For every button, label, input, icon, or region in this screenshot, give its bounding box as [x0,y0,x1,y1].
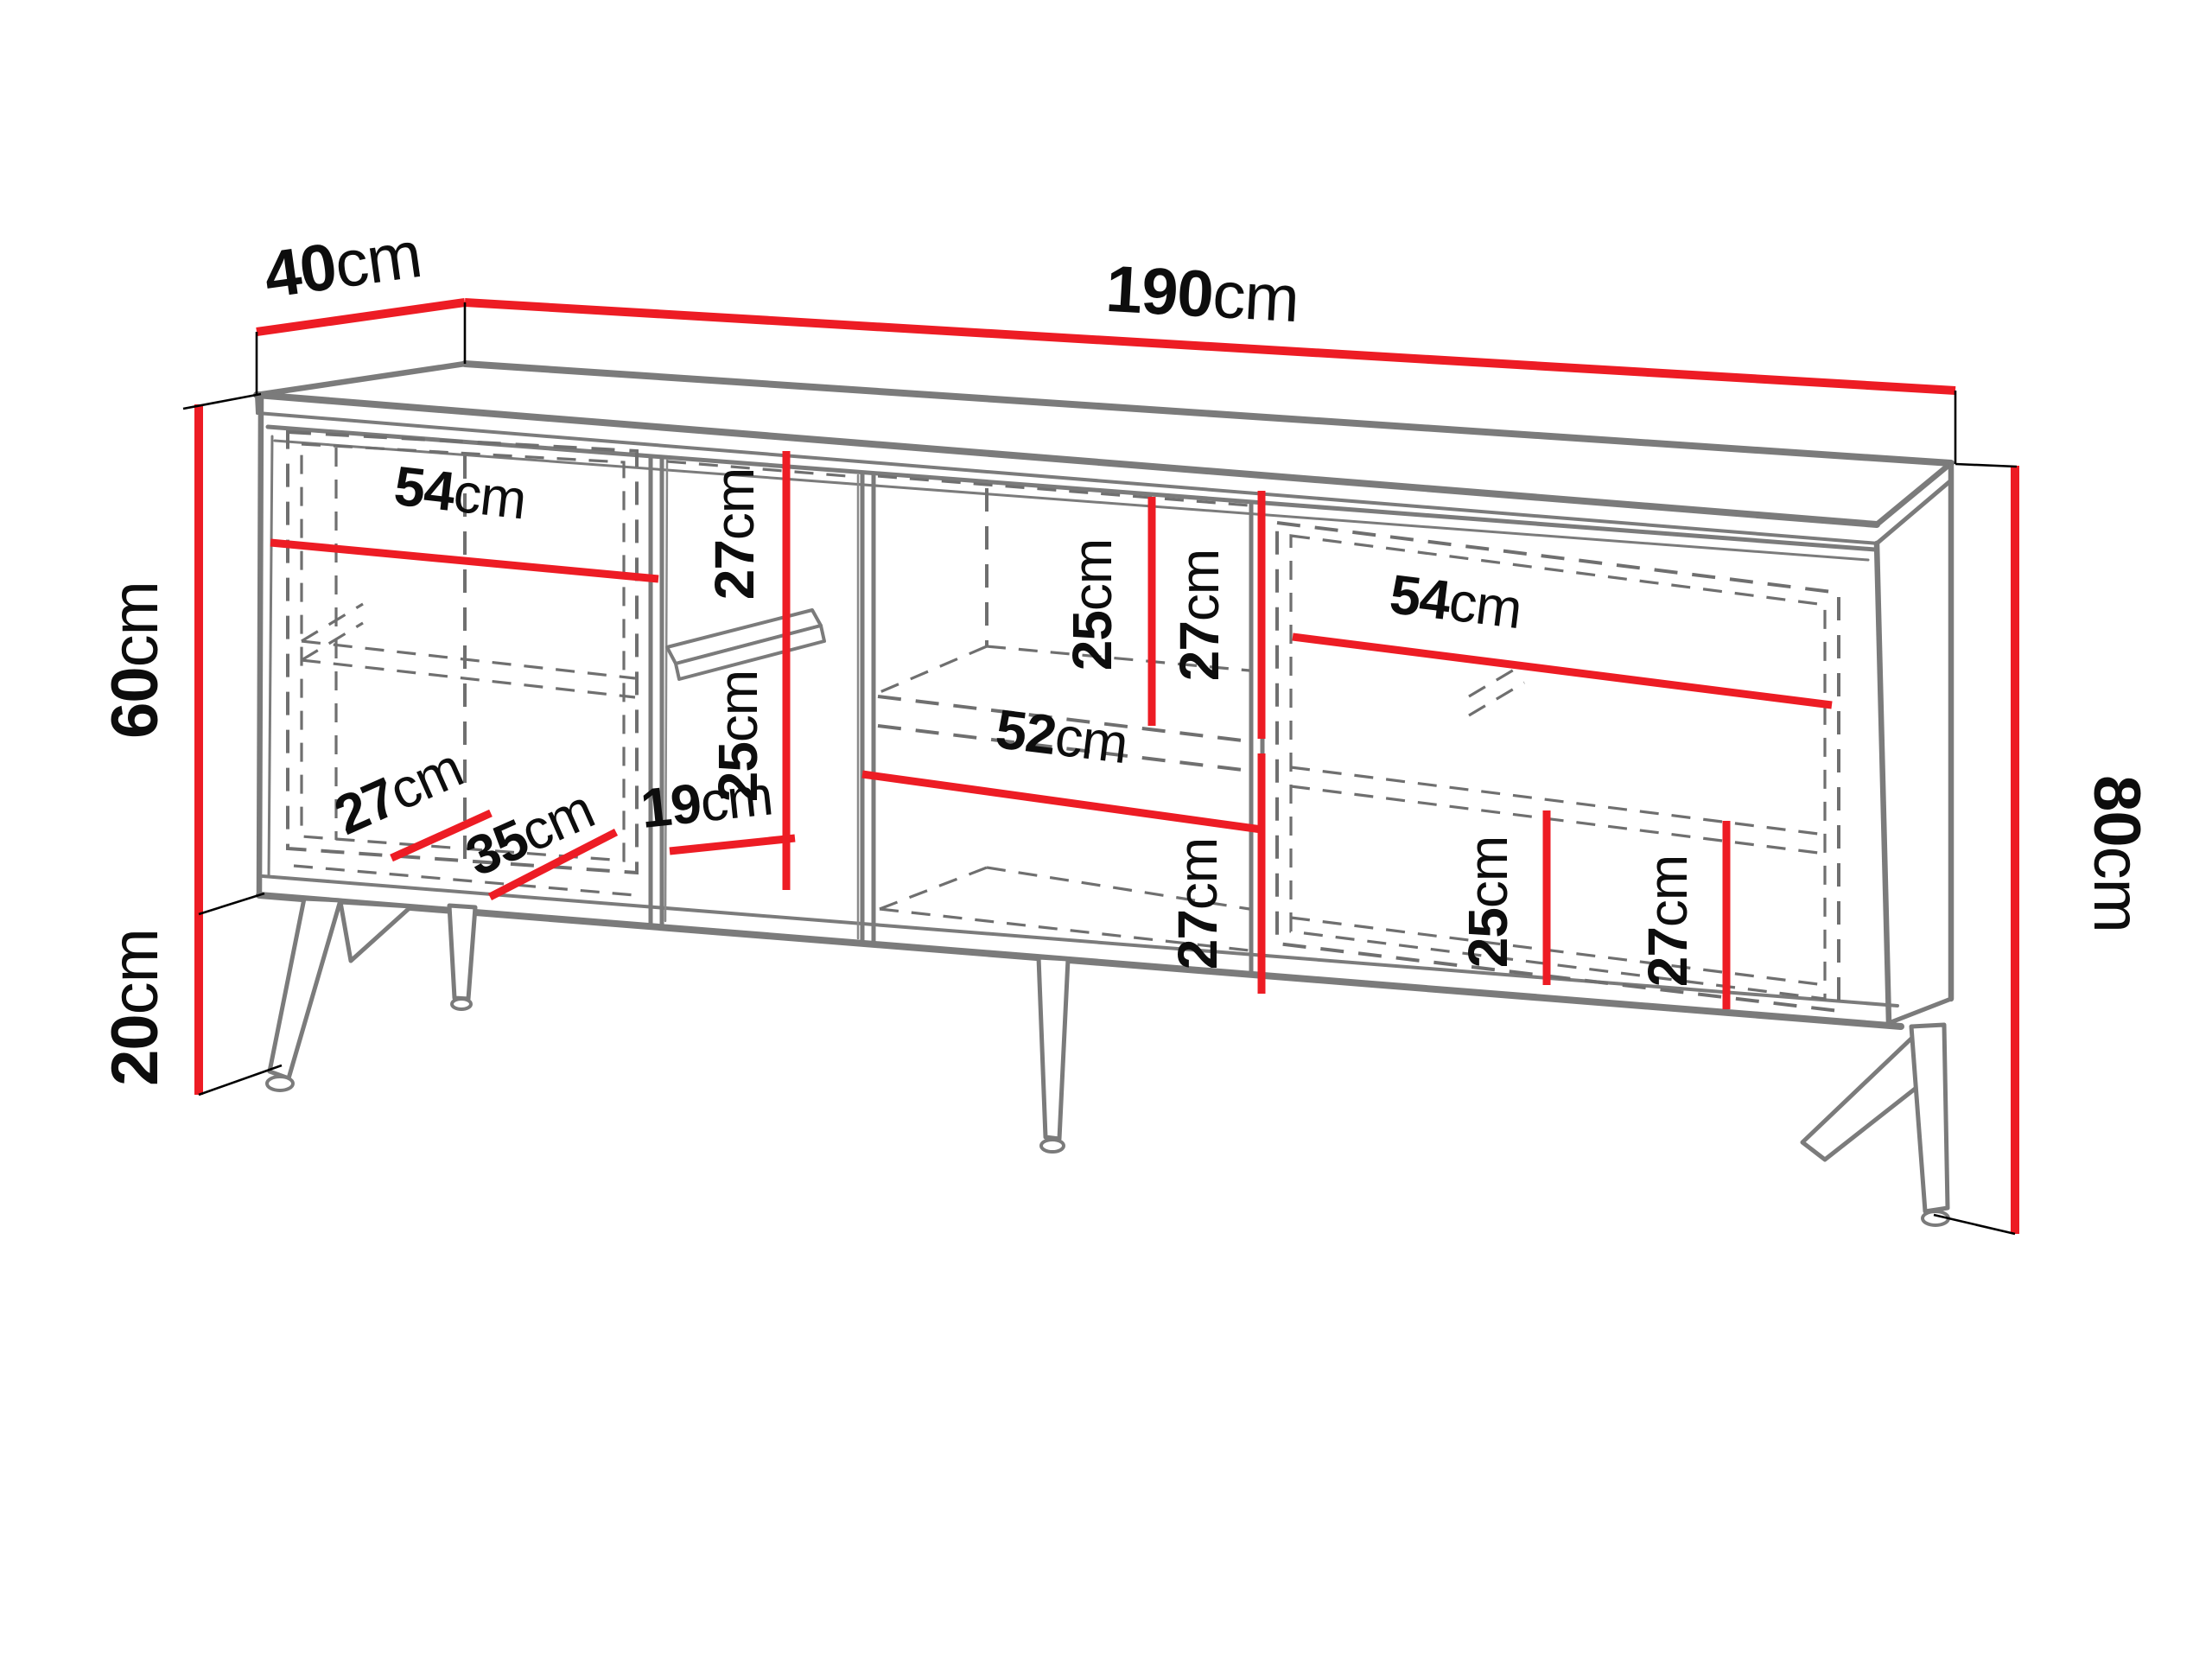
dim-label-left-depth-front: 35cm [457,778,603,888]
dim-label-middle-upper-left: 25cm [1061,539,1123,671]
middle-leg-foot [1041,1140,1064,1152]
dim-label-middle-width: 52cm [993,697,1131,775]
tick-60-top [183,394,261,409]
dim-line-right-width-54 [1293,637,1832,705]
back-left-leg [449,906,475,999]
front-left-leg-foot [267,1077,293,1090]
dim-line-middle-width-52 [862,774,1262,829]
carcass-left-edge [259,399,261,895]
middle-leg [1039,957,1068,1139]
front-left-leg [270,899,340,1078]
right-shelf-front-bottom [1291,786,1825,854]
top-panel-left-edge [257,395,257,413]
tick-80-top [1955,464,2017,467]
dim-label-niche-width: 19cm [638,764,775,840]
carcass-left-inner-edge [269,436,272,876]
dimension-diagram: 40cm 190cm 60cm 20cm 80cm 54cm 27cm 35cm… [0,0,2212,1659]
left-shelf-depth-a [302,604,363,641]
right-shelf-front-top [1291,767,1825,835]
dim-label-middle-lower: 27cm [1166,838,1229,970]
front-left-leg-brace [340,902,411,961]
dim-label-right-lower-left: 25cm [1457,836,1519,969]
dim-label-carcass-height: 60cm [99,582,172,739]
dim-label-width: 190cm [1104,252,1301,336]
right-shelf-depth-b [1469,683,1524,715]
dim-label-middle-upper-right: 27cm [1168,550,1230,682]
front-right-leg-brace [1802,1037,1922,1160]
dim-label-leg-height: 20cm [99,929,172,1086]
left-shelf-front-bottom [302,660,635,697]
right-bottom-hidden [1291,918,1825,985]
back-left-leg-foot [452,999,471,1009]
niche-left-inner-edge [665,460,667,921]
dim-label-total-height: 80cm [2080,775,2153,932]
dim-label-right-lower-right: 27cm [1637,855,1699,988]
dim-label-right-width: 54cm [1387,563,1525,640]
front-right-leg [1911,1025,1948,1211]
dim-line-niche-width-19 [670,838,795,851]
right-door-outline [1277,523,1839,1011]
dim-label-niche-upper: 27cm [703,468,766,601]
right-door-inner-outline [1291,536,1825,999]
middle-bottom-depth [880,868,987,909]
tick-60-bottom [199,893,264,914]
dim-label-depth: 40cm [259,218,425,312]
cabinet-dimension-drawing: 40cm 190cm 60cm 20cm 80cm 54cm 27cm 35cm… [0,0,2212,1659]
left-shelf-front-top [302,641,635,678]
middle-shelf-depth [878,646,987,693]
dim-label-left-width: 54cm [391,454,530,531]
